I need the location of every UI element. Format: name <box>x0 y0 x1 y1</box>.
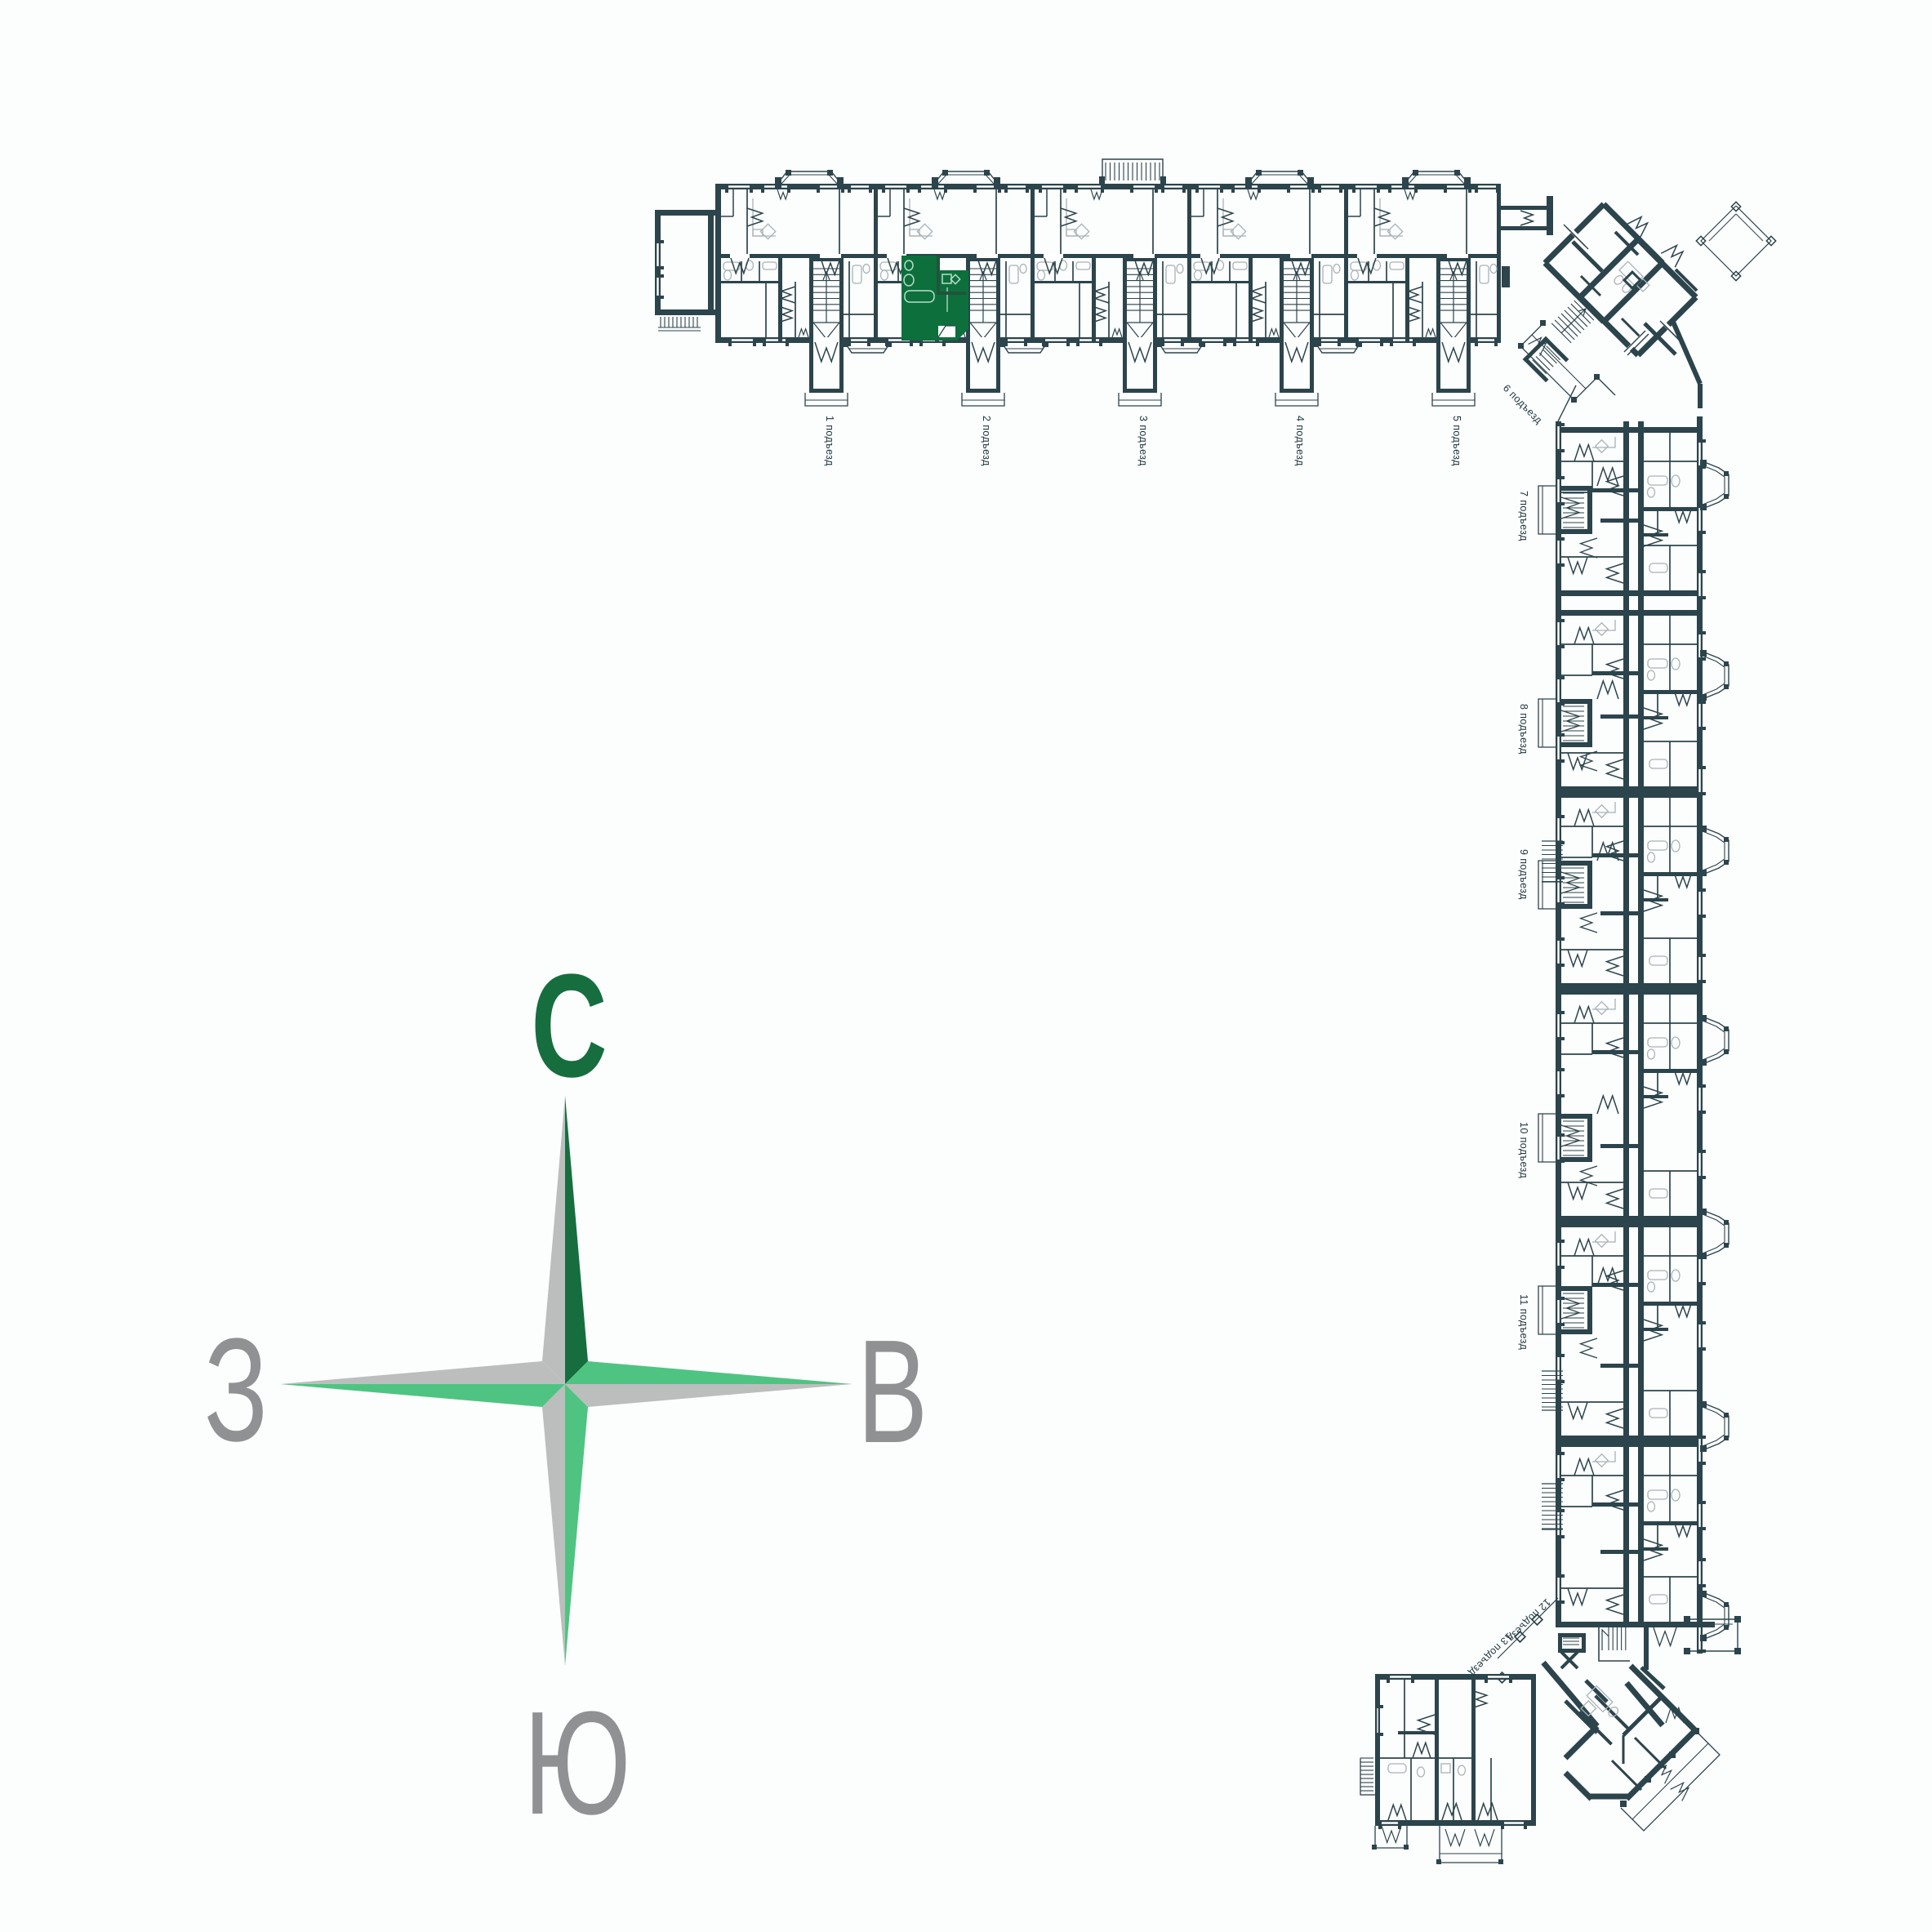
svg-text:С: С <box>531 944 608 1108</box>
svg-text:9 подъезд: 9 подъезд <box>1518 849 1529 900</box>
svg-text:5 подъезд: 5 подъезд <box>1451 416 1462 466</box>
svg-text:3 подъезд: 3 подъезд <box>1137 416 1149 466</box>
svg-text:2 подъезд: 2 подъезд <box>981 416 992 466</box>
svg-text:7 подъезд: 7 подъезд <box>1518 491 1529 541</box>
svg-text:4 подъезд: 4 подъезд <box>1294 416 1306 466</box>
svg-text:1 подъезд: 1 подъезд <box>824 416 835 466</box>
svg-text:11 подъезд: 11 подъезд <box>1518 1294 1529 1350</box>
svg-text:В: В <box>857 1310 928 1474</box>
svg-text:З: З <box>204 1308 268 1472</box>
svg-text:Ю: Ю <box>524 1681 631 1845</box>
svg-text:8 подъезд: 8 подъезд <box>1518 704 1529 755</box>
svg-text:10 подъезд: 10 подъезд <box>1518 1122 1529 1178</box>
